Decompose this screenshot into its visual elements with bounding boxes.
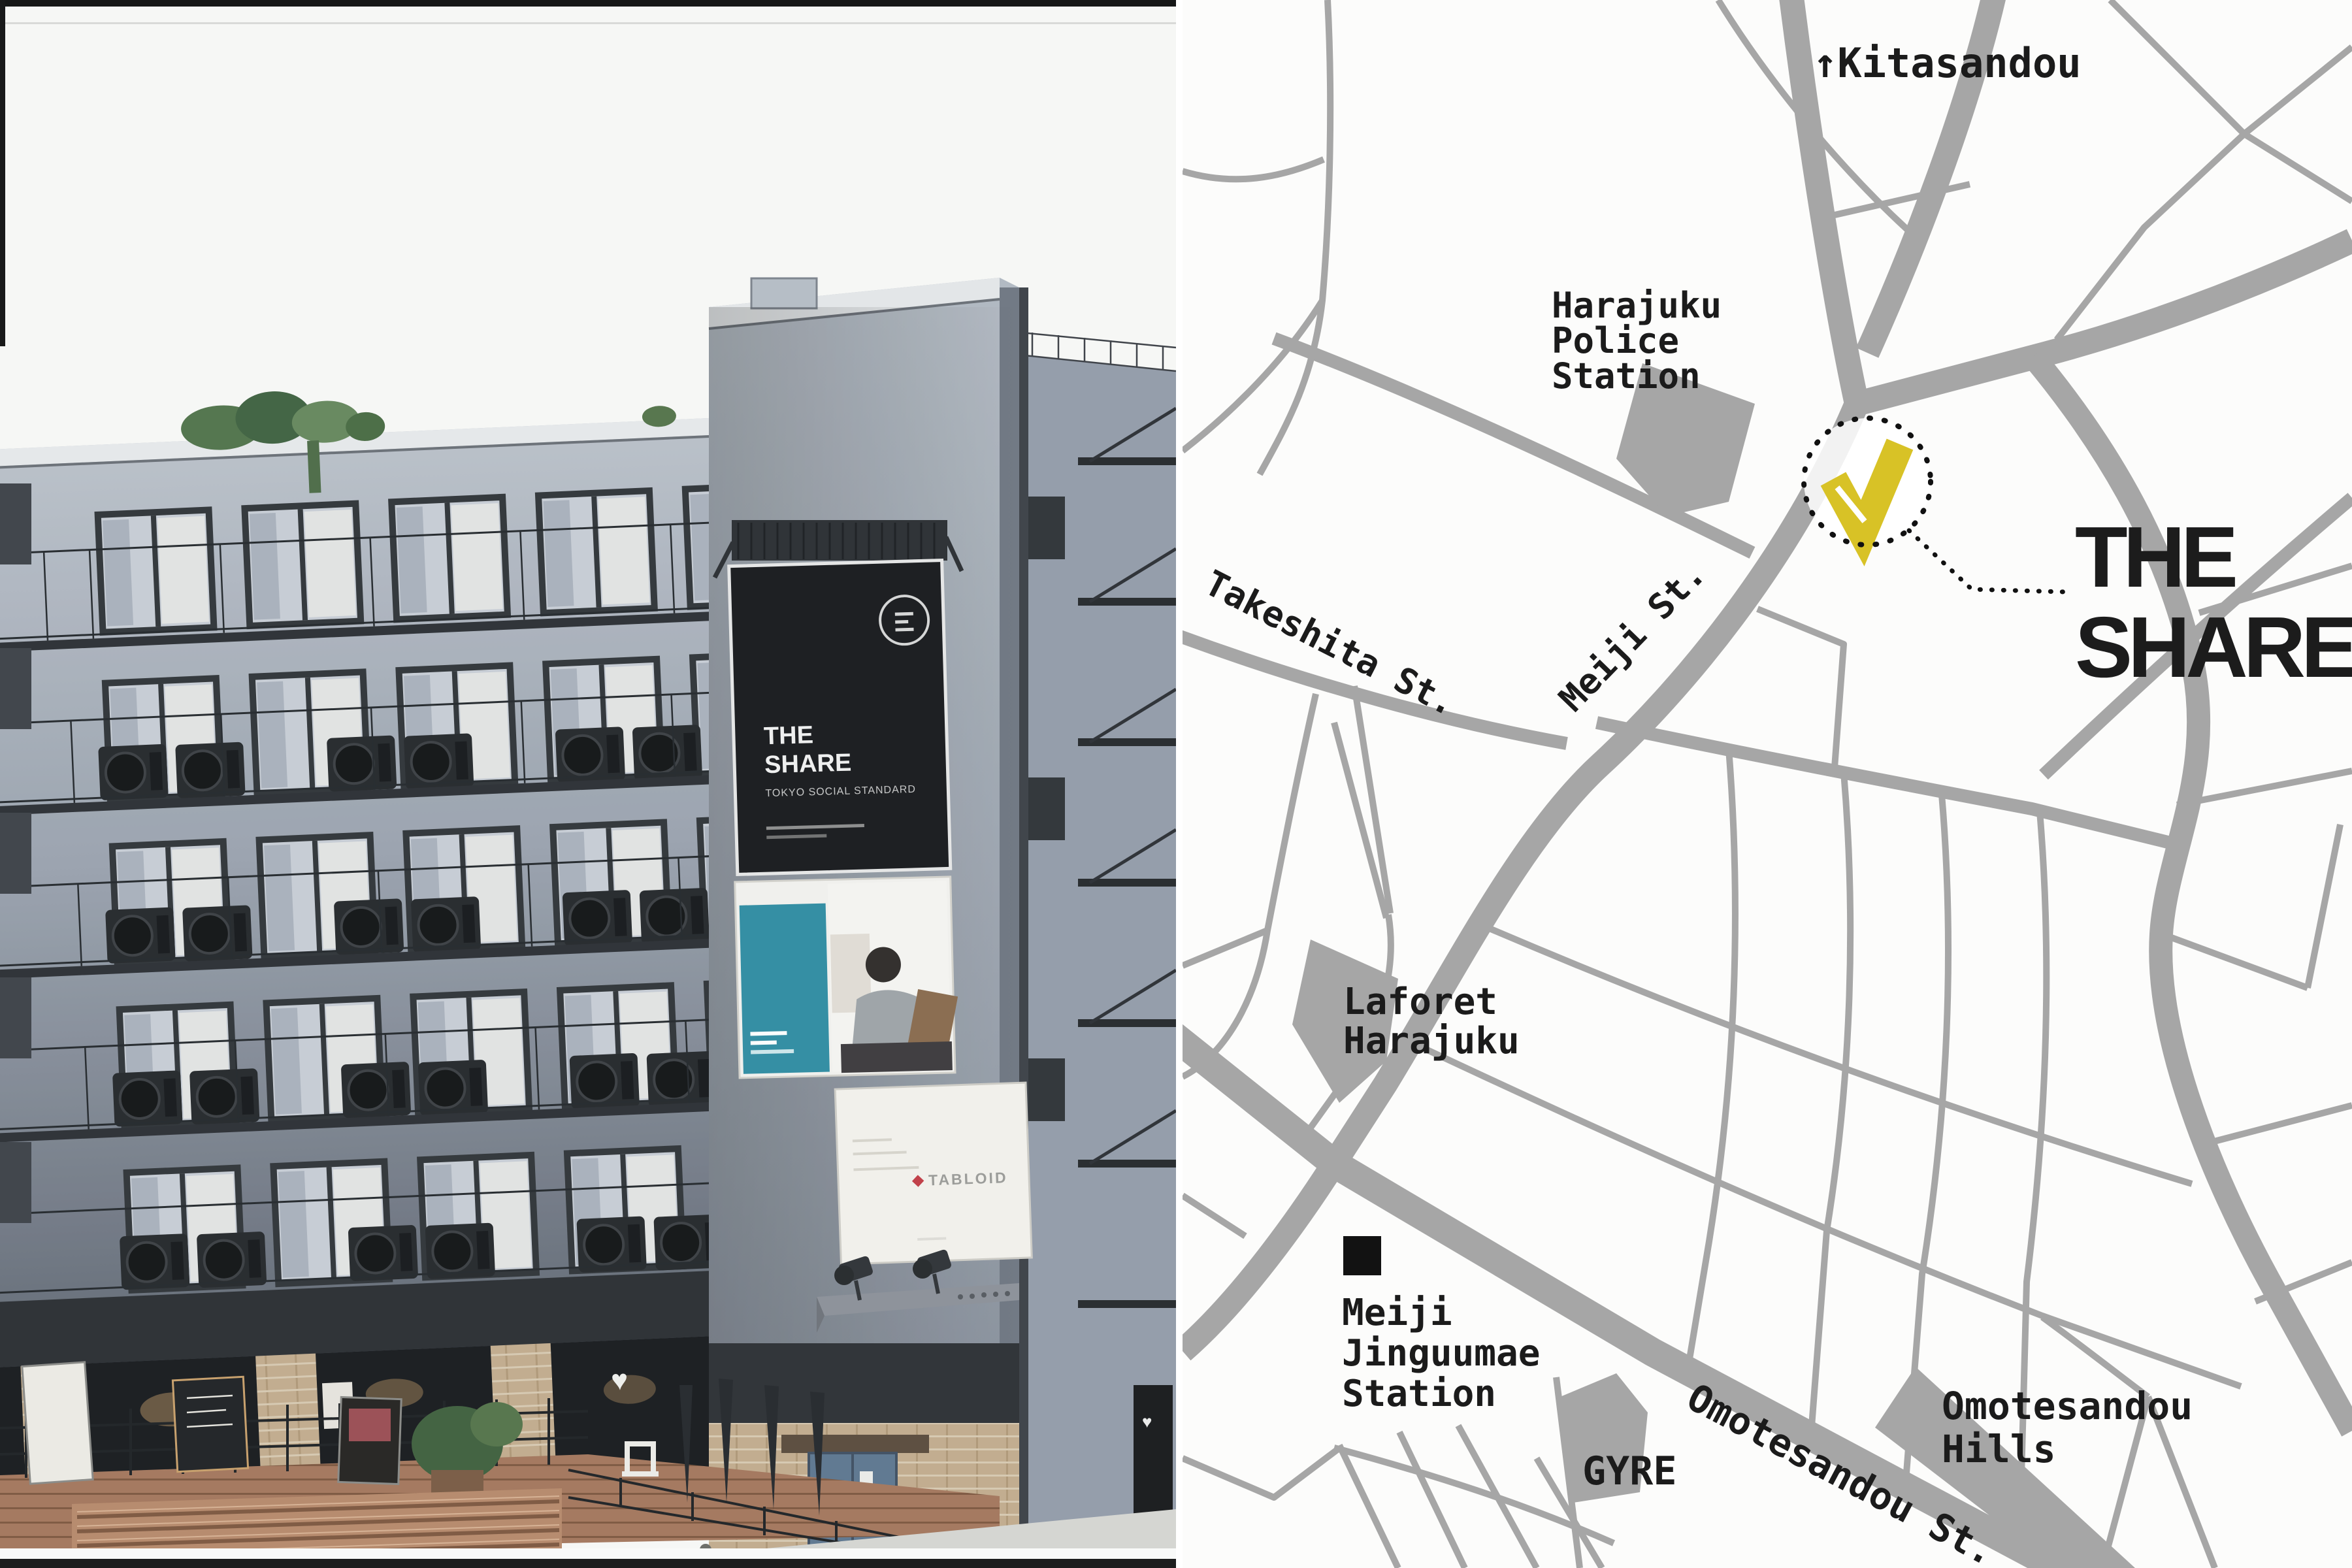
access-map-panel: ↑Kitasandou Harajuku Police Station Take… bbox=[1183, 0, 2352, 1568]
label-laforet-line1: Laforet bbox=[1343, 981, 1497, 1023]
label-station-line1: Meiji bbox=[1342, 1292, 1452, 1334]
label-hills-line2: Hills bbox=[1942, 1427, 2056, 1471]
screenshot: ♥ bbox=[0, 0, 2352, 1568]
label-gyre: GYRE bbox=[1582, 1448, 1677, 1494]
title-the-share-line1: THE bbox=[2075, 509, 2235, 605]
label-station-line2: Jinguumae bbox=[1342, 1332, 1540, 1375]
label-station-line3: Station bbox=[1342, 1373, 1496, 1415]
building-photo-panel: ♥ bbox=[0, 0, 1176, 1568]
meiji-jinguumae-station-square bbox=[1343, 1236, 1381, 1275]
access-map: ↑Kitasandou Harajuku Police Station Take… bbox=[1183, 0, 2352, 1568]
label-police-line3: Station bbox=[1552, 355, 1701, 397]
building-photo-illustration: ♥ bbox=[0, 0, 1176, 1568]
title-the-share-line2: SHARE bbox=[2075, 599, 2352, 695]
label-hills-line1: Omotesandou bbox=[1942, 1384, 2193, 1428]
panel-divider bbox=[1176, 0, 1183, 1568]
label-kitasandou: ↑Kitasandou bbox=[1813, 39, 2082, 87]
label-laforet-line2: Harajuku bbox=[1343, 1020, 1520, 1062]
